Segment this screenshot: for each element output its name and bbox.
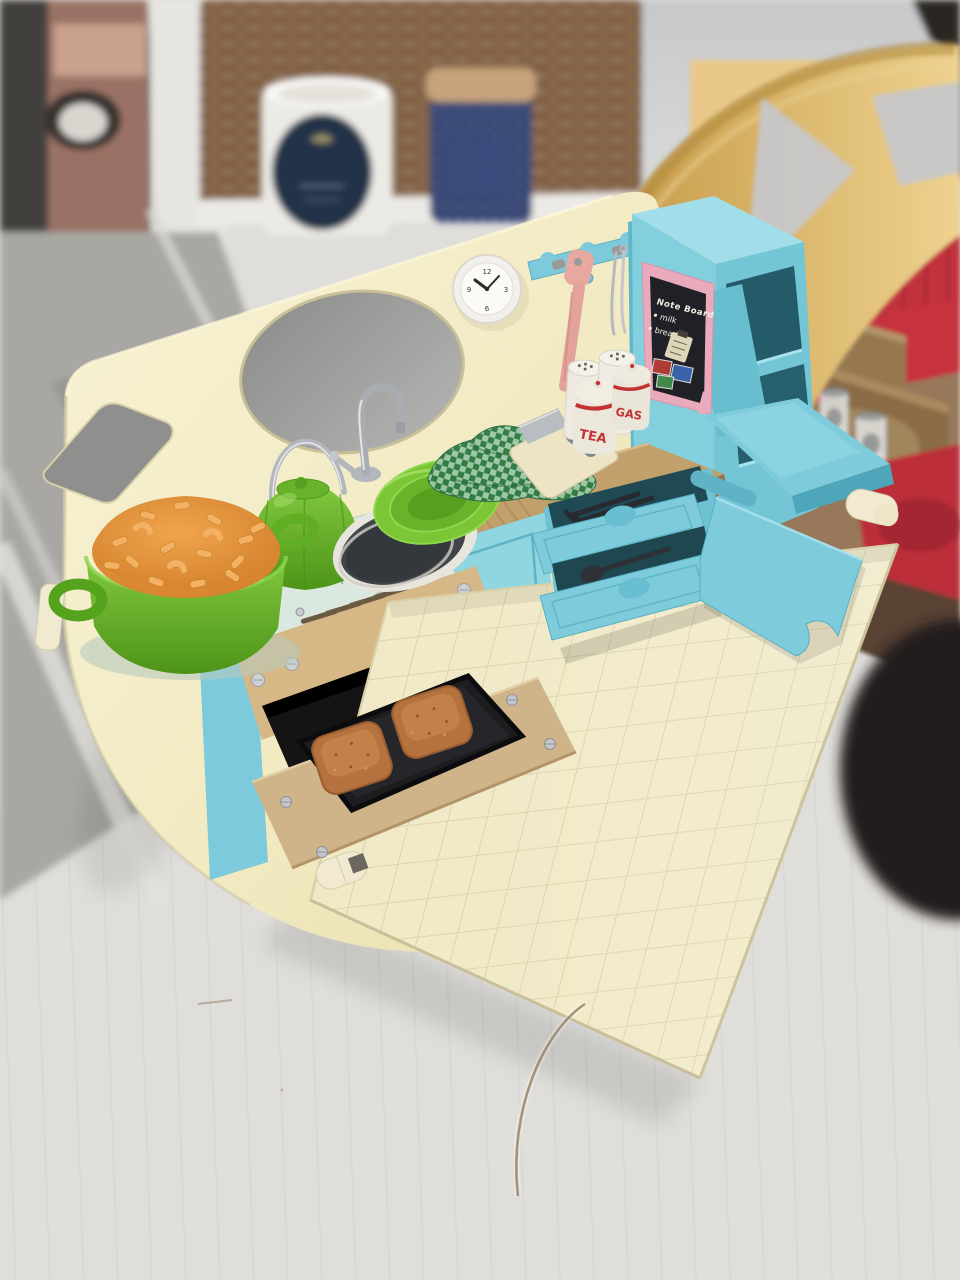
blue-candle-jar bbox=[426, 68, 536, 222]
clock-numeral-12: 12 bbox=[483, 268, 492, 276]
white-candle bbox=[262, 77, 392, 236]
candle-label bbox=[272, 114, 372, 230]
gas-canister: GAS bbox=[611, 363, 651, 431]
doorway bbox=[0, 0, 150, 234]
jar-label bbox=[446, 140, 500, 196]
photo-toy-camper-kitchen: 12 3 6 9 bbox=[0, 0, 960, 1280]
jar-wood-lid bbox=[426, 68, 536, 102]
clock-numeral-3: 3 bbox=[504, 286, 508, 294]
clock-numeral-9: 9 bbox=[467, 286, 471, 294]
note-board: Note Board milk bread bbox=[642, 262, 715, 415]
kettle-lid-knob bbox=[295, 477, 307, 489]
clock-numeral-6: 6 bbox=[485, 305, 490, 313]
